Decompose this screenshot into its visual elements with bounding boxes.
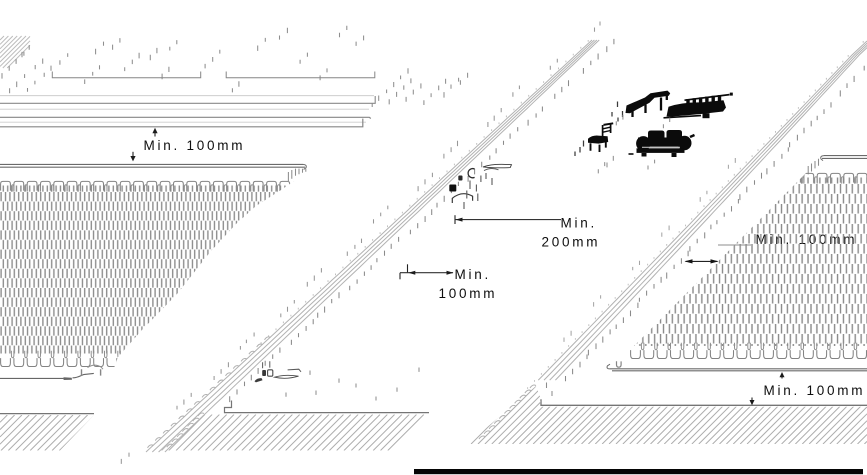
svg-text:200mm: 200mm [542,235,601,250]
svg-text:Min. 100mm: Min. 100mm [764,383,866,398]
svg-text:Min.: Min. [455,267,492,282]
svg-text:Min.: Min. [561,215,598,230]
svg-text:Min. 100mm: Min. 100mm [144,138,246,153]
svg-text:100mm: 100mm [439,286,498,301]
